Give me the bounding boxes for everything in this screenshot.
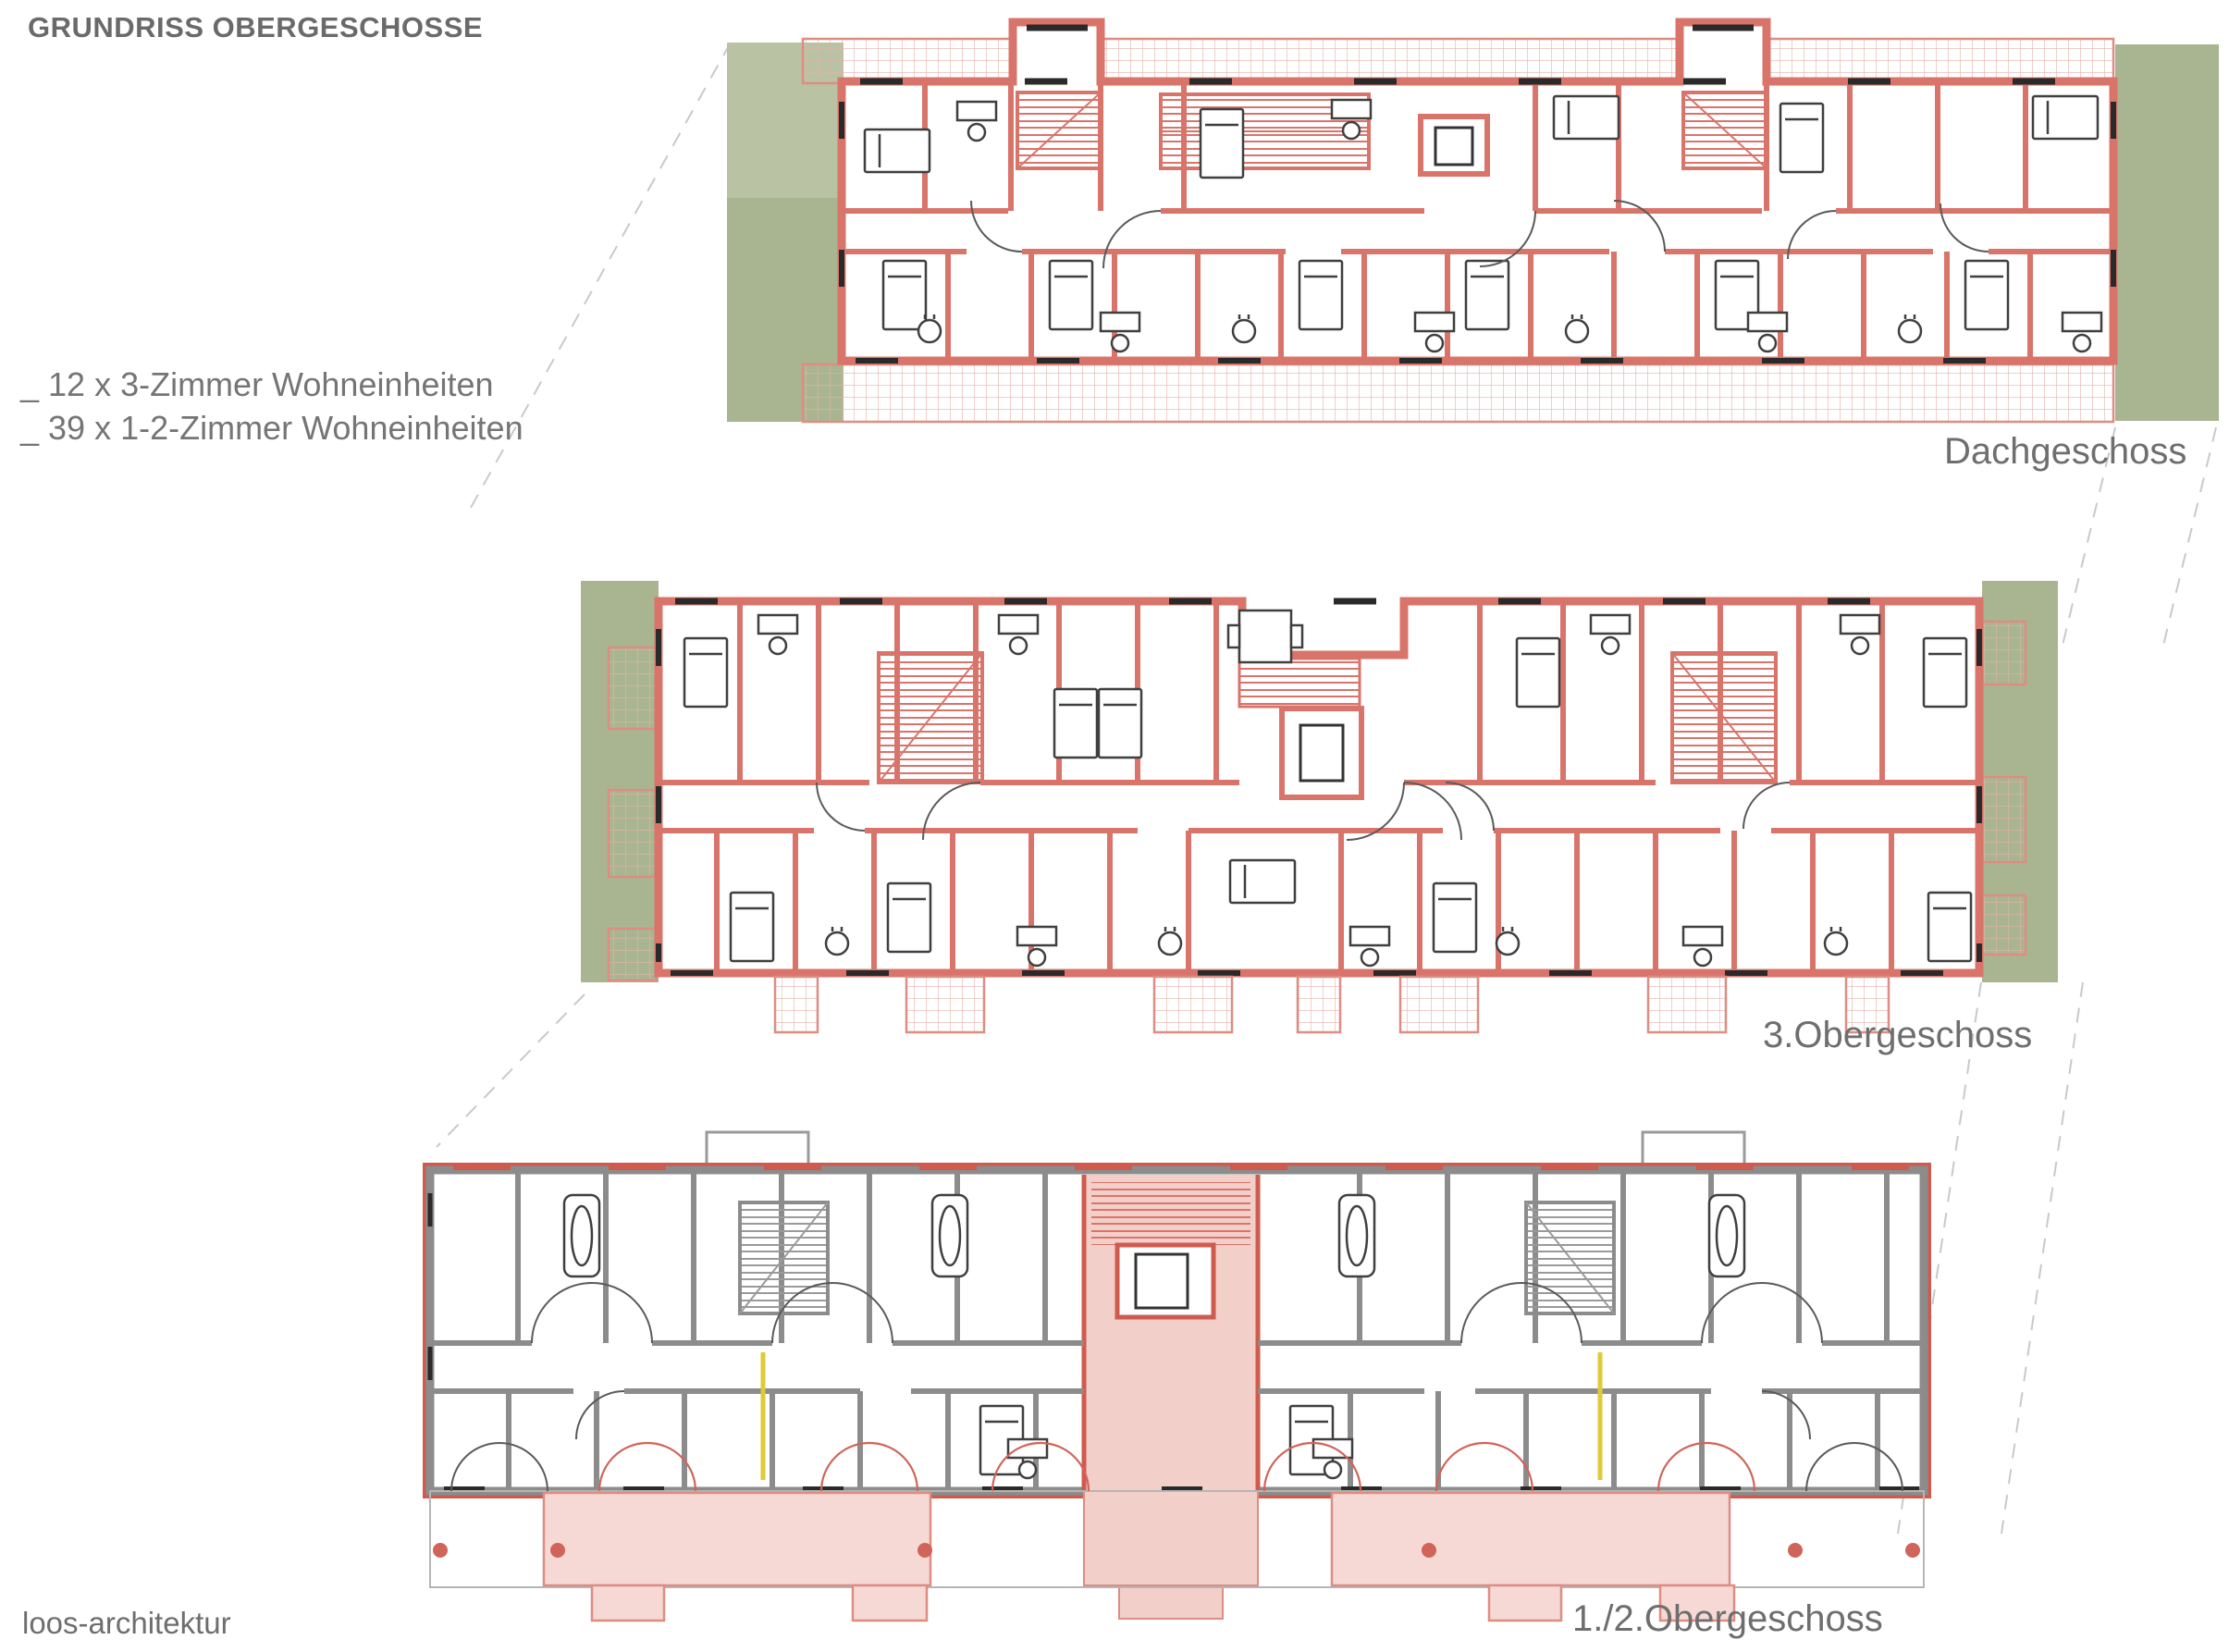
roof-terrace-hatch-top	[803, 39, 2113, 83]
balcony-hatch	[1979, 622, 2026, 684]
floor-label-3-obergeschoss: 3.Obergeschoss	[1763, 1015, 2032, 1056]
balcony-hatch	[1979, 895, 2026, 955]
balcony-hatch	[609, 929, 657, 980]
legend-item-3-zimmer: _ 12 x 3-Zimmer Wohneinheiten	[20, 363, 523, 406]
bathtub	[1339, 1195, 1374, 1276]
balcony-hatch	[1400, 977, 1478, 1032]
bed	[1466, 261, 1509, 329]
bed	[1230, 860, 1295, 903]
bed	[1928, 893, 1971, 961]
floor-plans-canvas	[0, 0, 2229, 1652]
column	[1422, 1543, 1436, 1558]
bathtub	[1709, 1195, 1744, 1276]
column	[550, 1543, 565, 1558]
green-area-left	[581, 581, 659, 982]
bed	[731, 893, 773, 961]
legend-item-1-2-zimmer: _ 39 x 1-2-Zimmer Wohneinheiten	[20, 406, 523, 450]
balcony-hatch	[775, 977, 818, 1032]
staircase-central	[1239, 659, 1360, 707]
green-area-right	[2115, 44, 2219, 421]
page-title: GRUNDRISS OBERGESCHOSSE	[28, 11, 483, 44]
column	[917, 1543, 932, 1558]
dining-table	[1228, 610, 1302, 662]
terrace-tab	[592, 1585, 664, 1621]
roof-terrace-hatch-bottom	[803, 364, 2113, 422]
balcony-hatch	[1154, 977, 1232, 1032]
floor-plan-dachgeschoss	[727, 22, 2219, 422]
floor-plan-3-obergeschoss	[581, 581, 2058, 1032]
elevator-car	[1136, 1254, 1188, 1308]
elevator-car	[1435, 128, 1472, 165]
column	[1905, 1543, 1920, 1558]
balcony-hatch	[1648, 977, 1726, 1032]
floor-label-dachgeschoss: Dachgeschoss	[1944, 431, 2186, 473]
terrace-east	[1332, 1493, 1730, 1585]
floor-label-1-2-obergeschoss: 1./2.Obergeschoss	[1572, 1598, 1883, 1640]
terrace-tab	[853, 1585, 927, 1621]
column	[1788, 1543, 1803, 1558]
bed	[888, 883, 930, 952]
studio-name: loos-architektur	[22, 1606, 231, 1641]
bed	[865, 129, 930, 172]
column	[433, 1543, 448, 1558]
balcony-hatch	[1979, 777, 2026, 862]
bathtub	[564, 1195, 599, 1276]
elevator-car	[1300, 725, 1343, 781]
bed	[684, 638, 727, 707]
core-terrace-tab	[1119, 1585, 1223, 1619]
bed	[1201, 109, 1243, 178]
bed	[1780, 104, 1823, 172]
bed	[1054, 689, 1097, 758]
balcony-hatch	[609, 647, 657, 729]
bathtub	[932, 1195, 967, 1276]
bed	[1299, 261, 1342, 329]
bed	[1434, 883, 1476, 952]
bed	[883, 261, 926, 329]
bed	[1050, 261, 1092, 329]
bed	[1554, 96, 1619, 139]
terrace-west	[544, 1493, 930, 1585]
core-terrace	[1084, 1491, 1258, 1585]
legend: _ 12 x 3-Zimmer Wohneinheiten _ 39 x 1-2…	[20, 363, 523, 450]
balcony-hatch	[1298, 977, 1340, 1032]
floor-plan-1-2-obergeschoss	[425, 1132, 1929, 1621]
bed	[1099, 689, 1141, 758]
bed	[1924, 638, 1966, 707]
bed	[1517, 638, 1559, 707]
staircase-central	[1091, 1182, 1250, 1245]
bed	[2033, 96, 2098, 139]
terrace-tab	[1489, 1585, 1561, 1621]
balcony-hatch	[609, 790, 657, 877]
bed	[1965, 261, 2008, 329]
balcony-hatch	[906, 977, 984, 1032]
